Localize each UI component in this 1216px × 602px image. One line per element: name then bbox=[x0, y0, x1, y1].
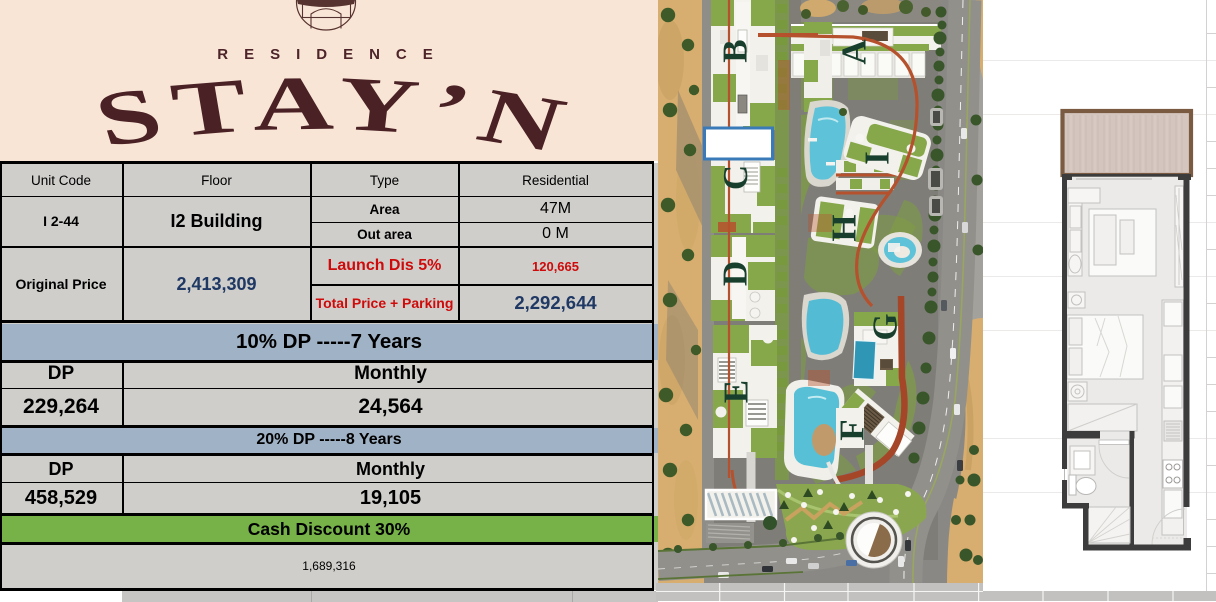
svg-text:H: H bbox=[825, 214, 864, 241]
svg-text:E: E bbox=[717, 380, 756, 403]
svg-text:C: C bbox=[716, 165, 755, 190]
svg-text:G: G bbox=[866, 313, 905, 340]
svg-text:F: F bbox=[833, 419, 872, 440]
svg-text:A: A bbox=[835, 39, 874, 65]
svg-text:STAYʼN: STAYʼN bbox=[85, 60, 586, 161]
svg-text:B: B bbox=[716, 39, 755, 62]
svg-text:D: D bbox=[716, 261, 755, 286]
svg-text:I: I bbox=[858, 151, 897, 165]
